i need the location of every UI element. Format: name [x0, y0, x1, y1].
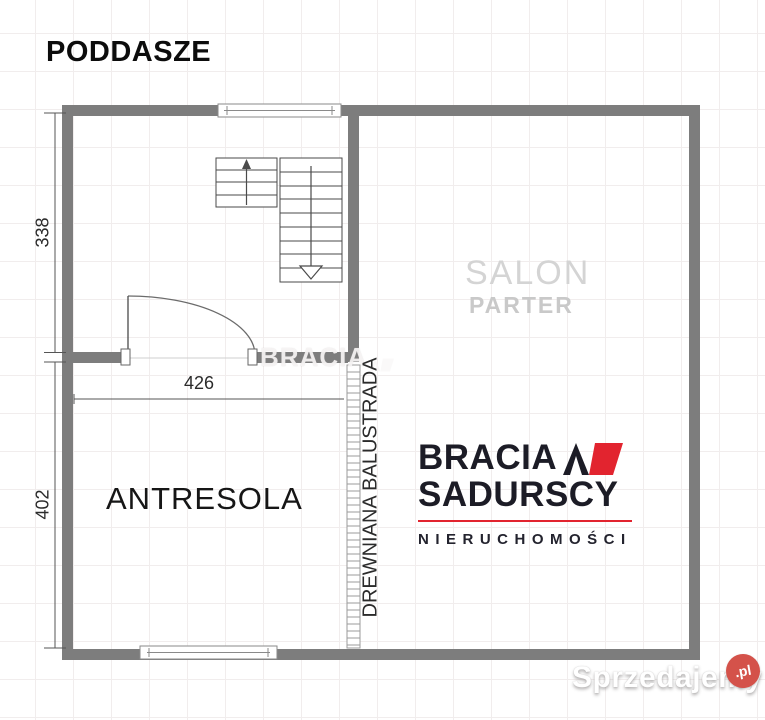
room-label-salon: SALON — [465, 254, 590, 293]
dimension-inner-width: 426 — [184, 373, 214, 394]
room-label-antresola: ANTRESOLA — [106, 481, 303, 517]
stairs — [216, 158, 342, 282]
agency-logo-tagline: NIERUCHOMOŚCI — [418, 531, 632, 548]
dimension-left-upper: 338 — [33, 212, 54, 254]
room-label-parter: PARTER — [469, 292, 574, 319]
site-watermark-tld: .pl — [734, 662, 753, 681]
agency-logo-line1: BRACIA — [418, 440, 557, 476]
door — [121, 296, 257, 365]
window-bottom — [140, 646, 277, 659]
agency-logo: BRACIA SADURSCY NIERUCHOMOŚCI — [418, 440, 632, 548]
window-top — [218, 104, 341, 117]
center-watermark-text: BRACIA — [260, 342, 367, 373]
balustrade-label: DREWNIANA BALUSTRADA — [360, 384, 383, 618]
agency-logo-mark-icon — [563, 443, 623, 475]
agency-logo-divider — [418, 520, 632, 522]
floorplan-canvas: PODDASZE — [0, 0, 765, 720]
balustrade-hatch — [347, 365, 360, 648]
dimension-left-lower: 402 — [33, 484, 54, 526]
agency-logo-line2: SADURSCY — [418, 477, 632, 513]
